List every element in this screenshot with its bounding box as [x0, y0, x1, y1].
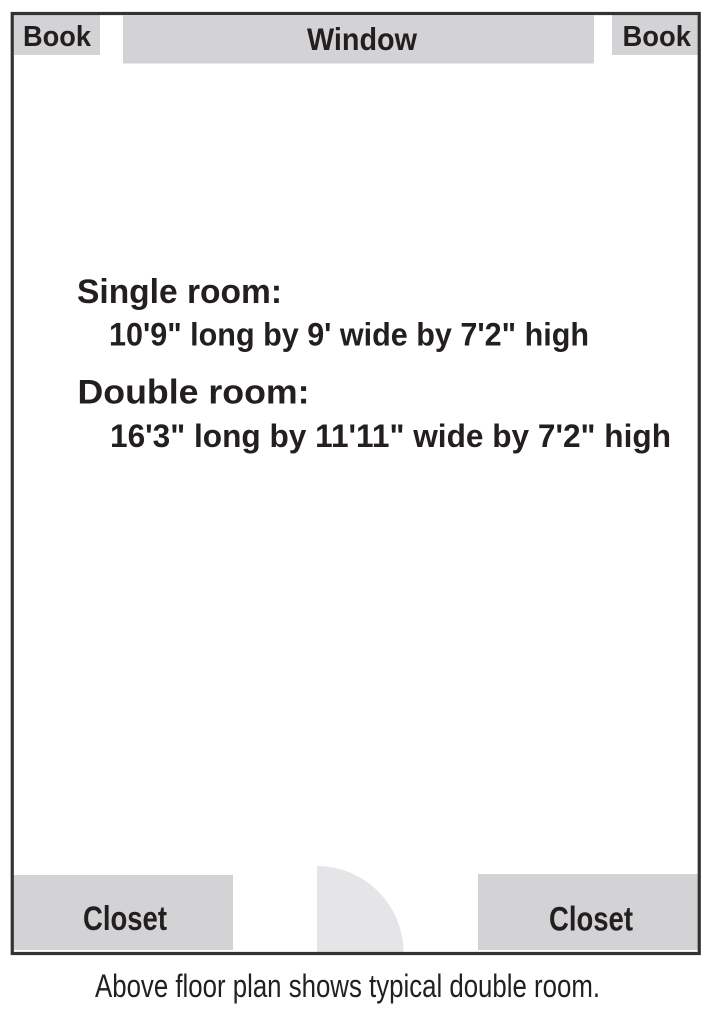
- svg-text:Closet: Closet: [83, 900, 167, 938]
- svg-text:16'3" long by 11'11" wide by 7: 16'3" long by 11'11" wide by 7'2" high: [110, 418, 671, 454]
- svg-text:Book: Book: [623, 21, 692, 53]
- svg-text:Double room:: Double room:: [78, 374, 310, 412]
- svg-text:Window: Window: [307, 21, 417, 57]
- svg-text:10'9" long by 9' wide by 7'2": 10'9" long by 9' wide by 7'2" high: [109, 317, 589, 353]
- svg-text:Single room:: Single room:: [77, 273, 282, 311]
- svg-text:Book: Book: [23, 21, 92, 53]
- svg-text:Closet: Closet: [549, 901, 633, 939]
- svg-text:Above floor plan shows typical: Above floor plan shows typical double ro…: [95, 968, 600, 1004]
